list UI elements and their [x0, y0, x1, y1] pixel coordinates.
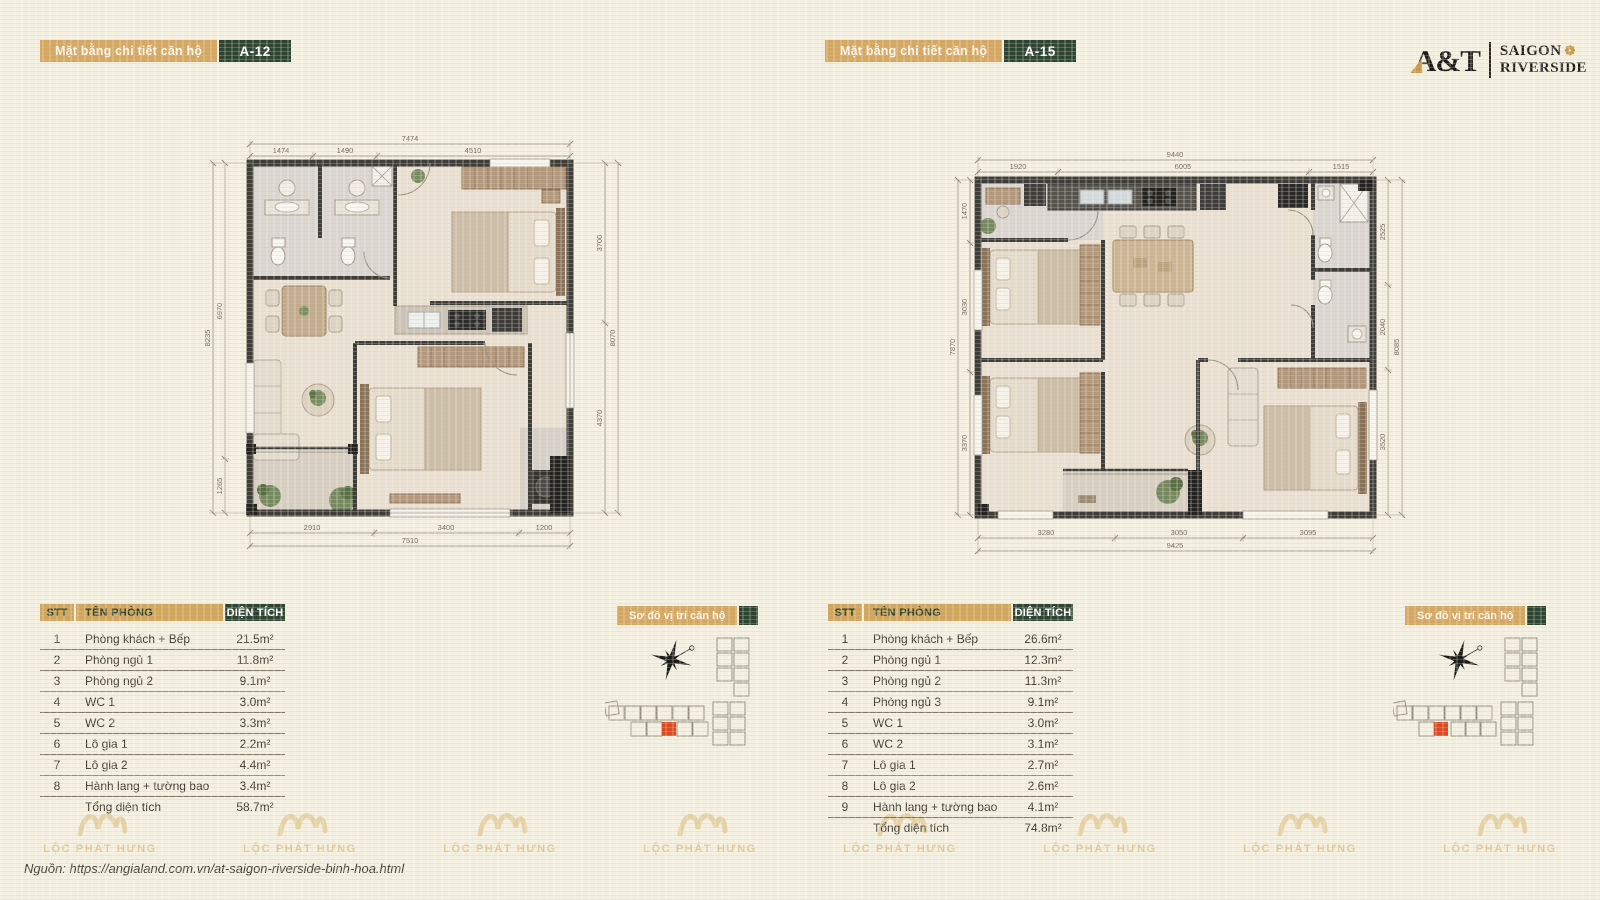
watermark-text: LỘC PHÁT HƯNG	[443, 843, 557, 855]
plan-header-a15: Mặt bằng chi tiết căn hộ A-15	[825, 40, 1076, 62]
location-label: Sơ đồ vị trí căn hộ	[1405, 606, 1525, 625]
dim-label: 9425	[1167, 541, 1184, 550]
dim-label: 7510	[402, 536, 419, 545]
dim-label: 3400	[438, 523, 455, 532]
dim-label: 3280	[1038, 528, 1055, 537]
row-name: Phòng ngủ 1	[862, 653, 1013, 667]
table-row: 3Phòng ngủ 29.1m²	[40, 671, 285, 692]
brand-logo: A&T SAIGON❁ RIVERSIDE	[1414, 42, 1587, 78]
dim-label: 3520	[1378, 434, 1387, 451]
dim-label: 7474	[402, 134, 419, 143]
watermark-text: LỘC PHÁT HƯNG	[643, 843, 757, 855]
location-badge-a15: Sơ đồ vị trí căn hộ	[1405, 606, 1546, 625]
loc-phat-hung-emblem-icon	[672, 806, 728, 842]
site-outline	[1393, 638, 1537, 745]
watermark-text: LỘC PHÁT HƯNG	[1243, 843, 1357, 855]
location-label: Sơ đồ vị trí căn hộ	[617, 606, 737, 625]
dim-label: 2040	[1378, 319, 1387, 336]
dim-label: 3095	[1300, 528, 1317, 537]
row-stt: 3	[40, 674, 74, 688]
dim-label: 9440	[1167, 150, 1184, 159]
table-row: 6WC 23.1m²	[828, 734, 1073, 755]
location-badge-square	[739, 606, 758, 625]
header-area: DIỆN TÍCH	[225, 604, 285, 621]
dim-label: 4370	[595, 410, 604, 427]
kitchen	[395, 306, 527, 334]
row-name: Lô gia 1	[74, 737, 225, 751]
row-name: Phòng ngủ 2	[862, 674, 1013, 688]
row-name: WC 2	[862, 737, 1013, 751]
row-area: 21.5m²	[225, 632, 285, 646]
dim-label: 2910	[304, 523, 321, 532]
table-row: 2Phòng ngủ 111.8m²	[40, 650, 285, 671]
dining-set	[1113, 226, 1193, 306]
row-stt: 5	[40, 716, 74, 730]
table-row: 8Hành lang + tường bao3.4m²	[40, 776, 285, 797]
dim-label: 8085	[1392, 339, 1401, 356]
row-stt: 5	[828, 716, 862, 730]
dim-label: 1474	[273, 146, 290, 155]
unit-code-badge: A-15	[1004, 40, 1076, 62]
table-row: 7Lô gia 12.7m²	[828, 755, 1073, 776]
dim-label: 3050	[1171, 528, 1188, 537]
table-row: 9Hành lang + tường bao4.1m²	[828, 797, 1073, 818]
dim-label: 6970	[215, 303, 224, 320]
unit-code-badge: A-12	[219, 40, 291, 62]
row-stt: 6	[40, 737, 74, 751]
dim-label: 3700	[595, 235, 604, 252]
dim-label: 1515	[1333, 162, 1350, 171]
row-name: WC 1	[74, 695, 225, 709]
watermark-text: LỘC PHÁT HƯNG	[1443, 843, 1557, 855]
dim-label: 8235	[203, 330, 212, 347]
location-map-a15	[1393, 628, 1548, 753]
total-area: 58.7m²	[225, 800, 285, 814]
compass-icon	[645, 634, 696, 685]
bedroom1	[982, 245, 1100, 326]
watermark: LỘC PHÁT HƯNG	[643, 806, 757, 855]
table-header: STT TÊN PHÒNG DIỆN TÍCH	[40, 604, 285, 621]
row-name: Phòng khách + Bếp	[862, 632, 1013, 646]
brand-line2: RIVERSIDE	[1500, 60, 1587, 77]
row-name: WC 1	[862, 716, 1013, 730]
row-name: Hành lang + tường bao	[74, 779, 225, 793]
unit-location-marker	[1434, 722, 1448, 736]
row-area: 11.8m²	[225, 653, 285, 667]
row-area: 9.1m²	[225, 674, 285, 688]
row-area: 3.3m²	[225, 716, 285, 730]
loc-phat-hung-emblem-icon	[472, 806, 528, 842]
table-row: 8Lô gia 22.6m²	[828, 776, 1073, 797]
table-body: 1Phòng khách + Bếp26.6m² 2Phòng ngủ 112.…	[828, 629, 1073, 838]
table-row: 3Phòng ngủ 211.3m²	[828, 671, 1073, 692]
pinwheel-icon: ❁	[1564, 43, 1575, 58]
dim-label: 1470	[960, 203, 969, 220]
logo-divider	[1489, 42, 1491, 78]
row-name: Lô gia 1	[862, 758, 1013, 772]
table-row: 4Phòng ngủ 39.1m²	[828, 692, 1073, 713]
table-row: 2Phòng ngủ 112.3m²	[828, 650, 1073, 671]
floorplan-a12: 7474 1474 1490 4510 2910 3400 1200 7510 …	[190, 128, 640, 573]
dim-label: 6005	[1175, 162, 1192, 171]
row-name: Phòng ngủ 1	[74, 653, 225, 667]
watermark-text: LỘC PHÁT HƯNG	[1043, 843, 1157, 855]
row-stt: 3	[828, 674, 862, 688]
row-stt: 2	[40, 653, 74, 667]
header-stt: STT	[828, 604, 862, 621]
row-area: 3.1m²	[1013, 737, 1073, 751]
dim-label: 7870	[948, 339, 957, 356]
loc-phat-hung-emblem-icon	[1272, 806, 1328, 842]
table-row: 4WC 13.0m²	[40, 692, 285, 713]
row-stt: 4	[828, 695, 862, 709]
table-row: 6Lô gia 12.2m²	[40, 734, 285, 755]
row-stt: 8	[828, 779, 862, 793]
row-stt: 7	[828, 758, 862, 772]
location-badge-a12: Sơ đồ vị trí căn hộ	[617, 606, 758, 625]
row-stt: 9	[828, 800, 862, 814]
floorplan-a15: 9440 1920 6005 1515 3280 3050 3095 9425 …	[928, 140, 1428, 585]
row-stt: 6	[828, 737, 862, 751]
row-name: Hành lang + tường bao	[862, 800, 1013, 814]
location-map-a12	[605, 628, 760, 753]
dim-label: 1265	[215, 478, 224, 495]
area-table-a12: STT TÊN PHÒNG DIỆN TÍCH 1Phòng khách + B…	[40, 604, 285, 817]
dim-label: 2525	[1378, 224, 1387, 241]
row-stt: 2	[828, 653, 862, 667]
loc-phat-hung-emblem-icon	[1072, 806, 1128, 842]
row-area: 3.0m²	[1013, 716, 1073, 730]
dim-label: 3030	[960, 299, 969, 316]
watermark-text: LỘC PHÁT HƯNG	[843, 843, 957, 855]
header-name: TÊN PHÒNG	[864, 604, 1011, 621]
site-outline	[605, 638, 749, 745]
row-stt: 4	[40, 695, 74, 709]
dim-label: 3370	[960, 435, 969, 452]
watermark: LỘC PHÁT HƯNG	[1243, 806, 1357, 855]
row-name: Lô gia 2	[862, 779, 1013, 793]
row-name: Lô gia 2	[74, 758, 225, 772]
row-stt: 1	[828, 632, 862, 646]
table-total-row: Tổng diện tích58.7m²	[40, 797, 285, 817]
dim-label: 1490	[337, 146, 354, 155]
loc-phat-hung-emblem-icon	[1472, 806, 1528, 842]
row-area: 3.0m²	[225, 695, 285, 709]
header-stt: STT	[40, 604, 74, 621]
area-table-a15: STT TÊN PHÒNG DIỆN TÍCH 1Phòng khách + B…	[828, 604, 1073, 838]
dim-label: 1920	[1010, 162, 1027, 171]
row-name: Phòng ngủ 2	[74, 674, 225, 688]
table-row: 7Lô gia 24.4m²	[40, 755, 285, 776]
dim-label: 8070	[608, 330, 617, 347]
table-row: 5WC 23.3m²	[40, 713, 285, 734]
row-area: 2.7m²	[1013, 758, 1073, 772]
table-body: 1Phòng khách + Bếp21.5m² 2Phòng ngủ 111.…	[40, 629, 285, 817]
header-area: DIỆN TÍCH	[1013, 604, 1073, 621]
compass-icon	[1433, 634, 1484, 685]
watermark: LỘC PHÁT HƯNG	[1443, 806, 1557, 855]
total-area: 74.8m²	[1013, 821, 1073, 835]
row-area: 9.1m²	[1013, 695, 1073, 709]
brochure-page: Mặt bằng chi tiết căn hộ A-12 Mặt bằng c…	[0, 0, 1600, 900]
row-area: 2.2m²	[225, 737, 285, 751]
bedroom3	[1264, 368, 1367, 494]
plan-header-a12: Mặt bằng chi tiết căn hộ A-12	[40, 40, 291, 62]
table-row: 1Phòng khách + Bếp26.6m²	[828, 629, 1073, 650]
location-badge-square	[1527, 606, 1546, 625]
table-row: 1Phòng khách + Bếp21.5m²	[40, 629, 285, 650]
source-url[interactable]: Nguồn: https://angialand.com.vn/at-saigo…	[24, 861, 404, 876]
bedroom2	[982, 373, 1100, 454]
row-stt: 7	[40, 758, 74, 772]
unit-location-marker	[662, 722, 676, 736]
row-area: 3.4m²	[225, 779, 285, 793]
watermark-text: LỘC PHÁT HƯNG	[243, 843, 357, 855]
row-area: 4.1m²	[1013, 800, 1073, 814]
row-name: Phòng ngủ 3	[862, 695, 1013, 709]
row-area: 12.3m²	[1013, 653, 1073, 667]
brand-line1: SAIGON	[1500, 43, 1562, 59]
row-area: 11.3m²	[1013, 674, 1073, 688]
row-area: 4.4m²	[225, 758, 285, 772]
table-header: STT TÊN PHÒNG DIỆN TÍCH	[828, 604, 1073, 621]
brand-name: SAIGON❁ RIVERSIDE	[1500, 43, 1587, 78]
row-area: 26.6m²	[1013, 632, 1073, 646]
header-name: TÊN PHÒNG	[76, 604, 223, 621]
watermark: LỘC PHÁT HƯNG	[443, 806, 557, 855]
row-name: Phòng khách + Bếp	[74, 632, 225, 646]
row-area: 2.6m²	[1013, 779, 1073, 793]
row-name: WC 2	[74, 716, 225, 730]
total-label: Tổng diện tích	[862, 821, 1013, 835]
brand-mark: A&T	[1414, 45, 1480, 76]
row-stt: 8	[40, 779, 74, 793]
watermark-text: LỘC PHÁT HƯNG	[43, 843, 157, 855]
table-row: 5WC 13.0m²	[828, 713, 1073, 734]
row-stt: 1	[40, 632, 74, 646]
dim-label: 4510	[465, 146, 482, 155]
dim-label: 1200	[536, 523, 553, 532]
total-label: Tổng diện tích	[74, 800, 225, 814]
plan-header-label: Mặt bằng chi tiết căn hộ	[40, 40, 217, 62]
table-total-row: Tổng diện tích74.8m²	[828, 818, 1073, 838]
plan-header-label: Mặt bằng chi tiết căn hộ	[825, 40, 1002, 62]
